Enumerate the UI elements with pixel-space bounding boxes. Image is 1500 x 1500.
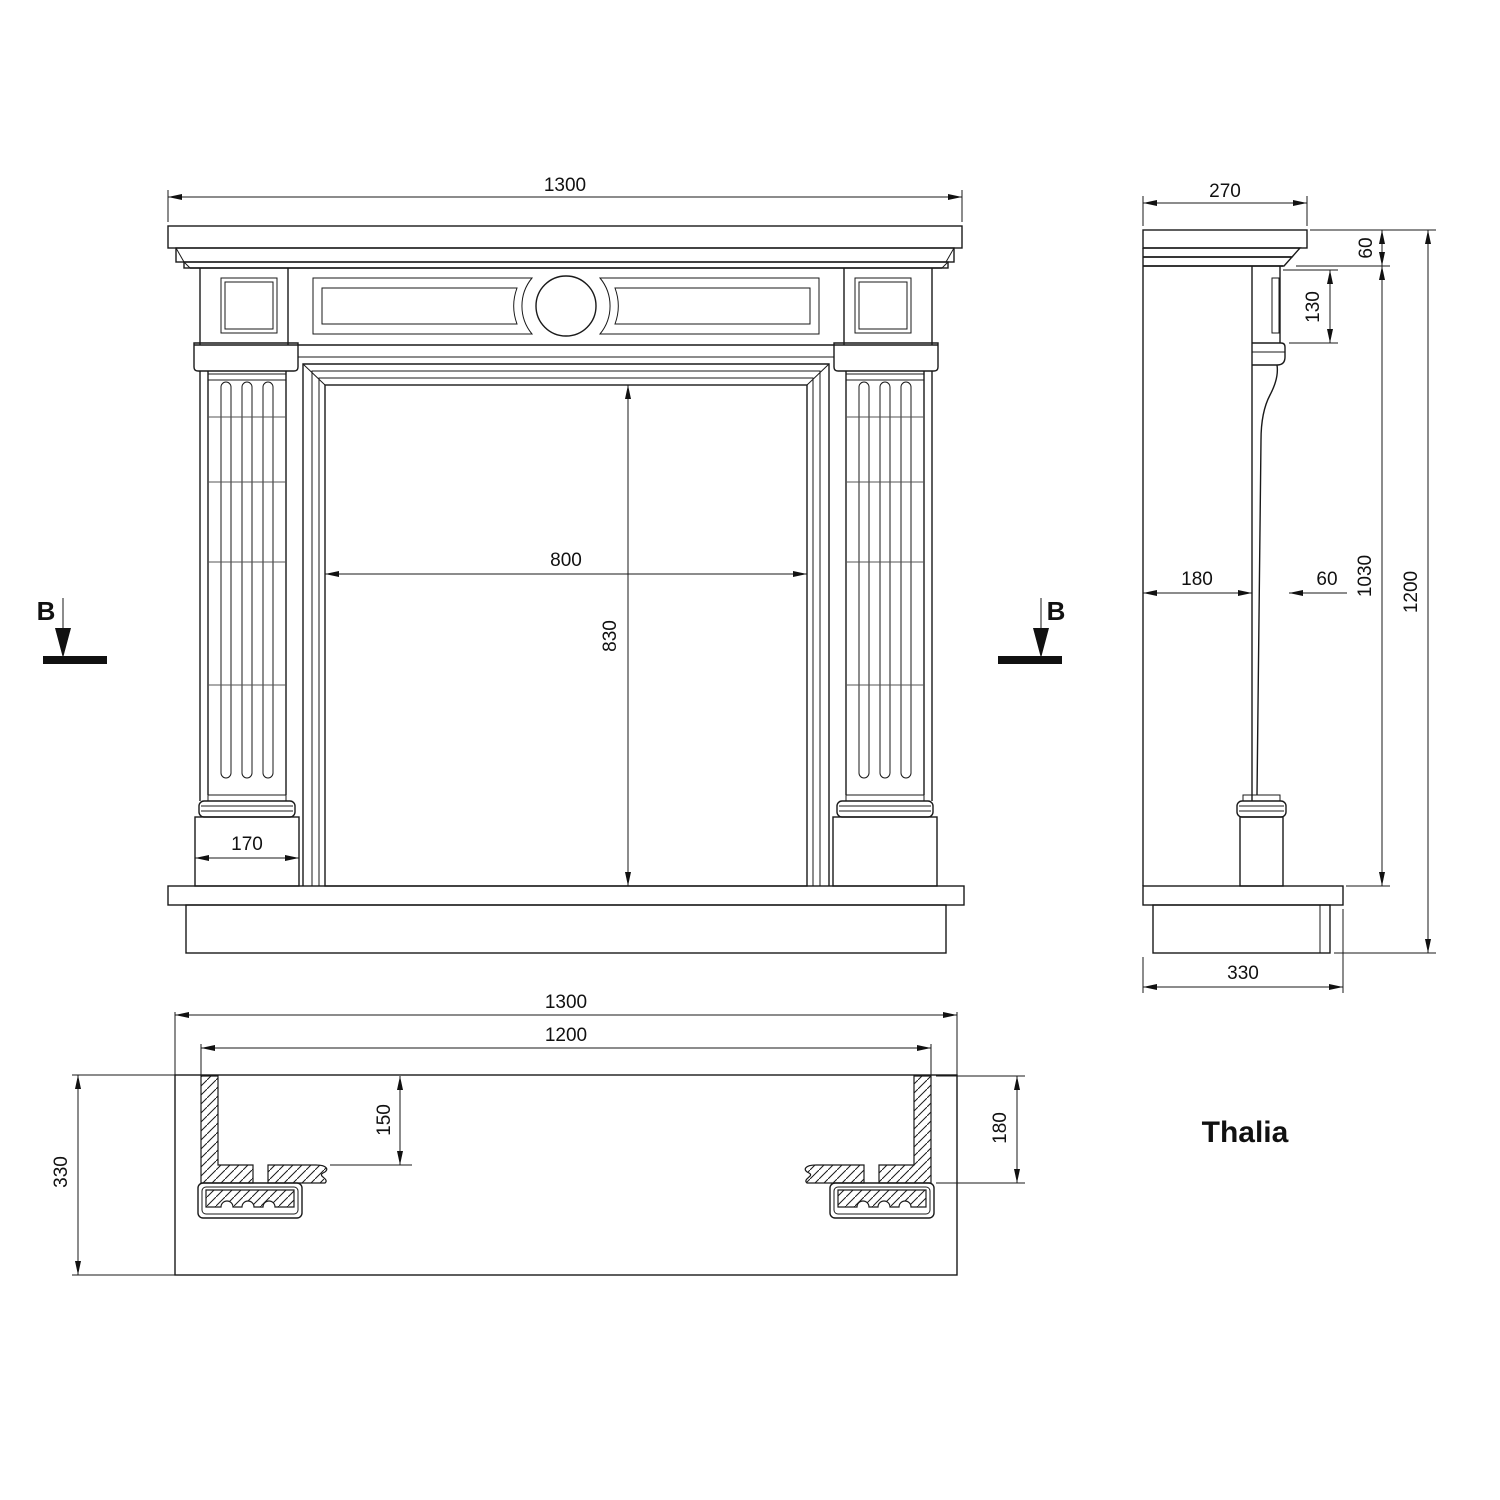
dim-side-frieze-height: 130 xyxy=(1303,291,1324,323)
dim-side-wall-to-column: 180 xyxy=(1181,569,1213,590)
dim-front-opening-height: 830 xyxy=(600,620,621,652)
dim-plan-end-wall-depth: 180 xyxy=(990,1112,1011,1144)
plan-wall-right-return xyxy=(805,1165,864,1183)
section-bar-right xyxy=(998,656,1062,664)
dim-plan-base-depth: 330 xyxy=(51,1156,72,1188)
dim-side-base-depth: 330 xyxy=(1227,963,1259,984)
section-label-right: B xyxy=(1047,596,1066,626)
fireplace-drawing-canvas: 1300 800 830 170 B B xyxy=(0,0,1500,1500)
technical-drawing-sheet: 1300 800 830 170 B B xyxy=(0,0,1500,1500)
dim-plan-overall-width: 1300 xyxy=(545,992,587,1013)
section-label-left: B xyxy=(37,596,56,626)
dim-side-shelf-depth: 270 xyxy=(1209,181,1241,202)
product-title: Thalia xyxy=(1202,1116,1289,1149)
dim-front-plinth-width: 170 xyxy=(231,834,263,855)
dim-front-opening-width: 800 xyxy=(550,550,582,571)
plan-wall-left-return xyxy=(268,1165,327,1183)
dim-plan-inner-width: 1200 xyxy=(545,1025,587,1046)
dim-side-column-depth: 60 xyxy=(1316,569,1337,590)
dim-side-overall-height: 1200 xyxy=(1401,571,1422,613)
dim-front-overall-width: 1300 xyxy=(544,175,586,196)
dim-side-column-zone-height: 1030 xyxy=(1355,555,1376,597)
dim-plan-wall-return: 150 xyxy=(374,1104,395,1136)
section-bar-left xyxy=(43,656,107,664)
dim-side-shelf-height: 60 xyxy=(1356,237,1377,258)
